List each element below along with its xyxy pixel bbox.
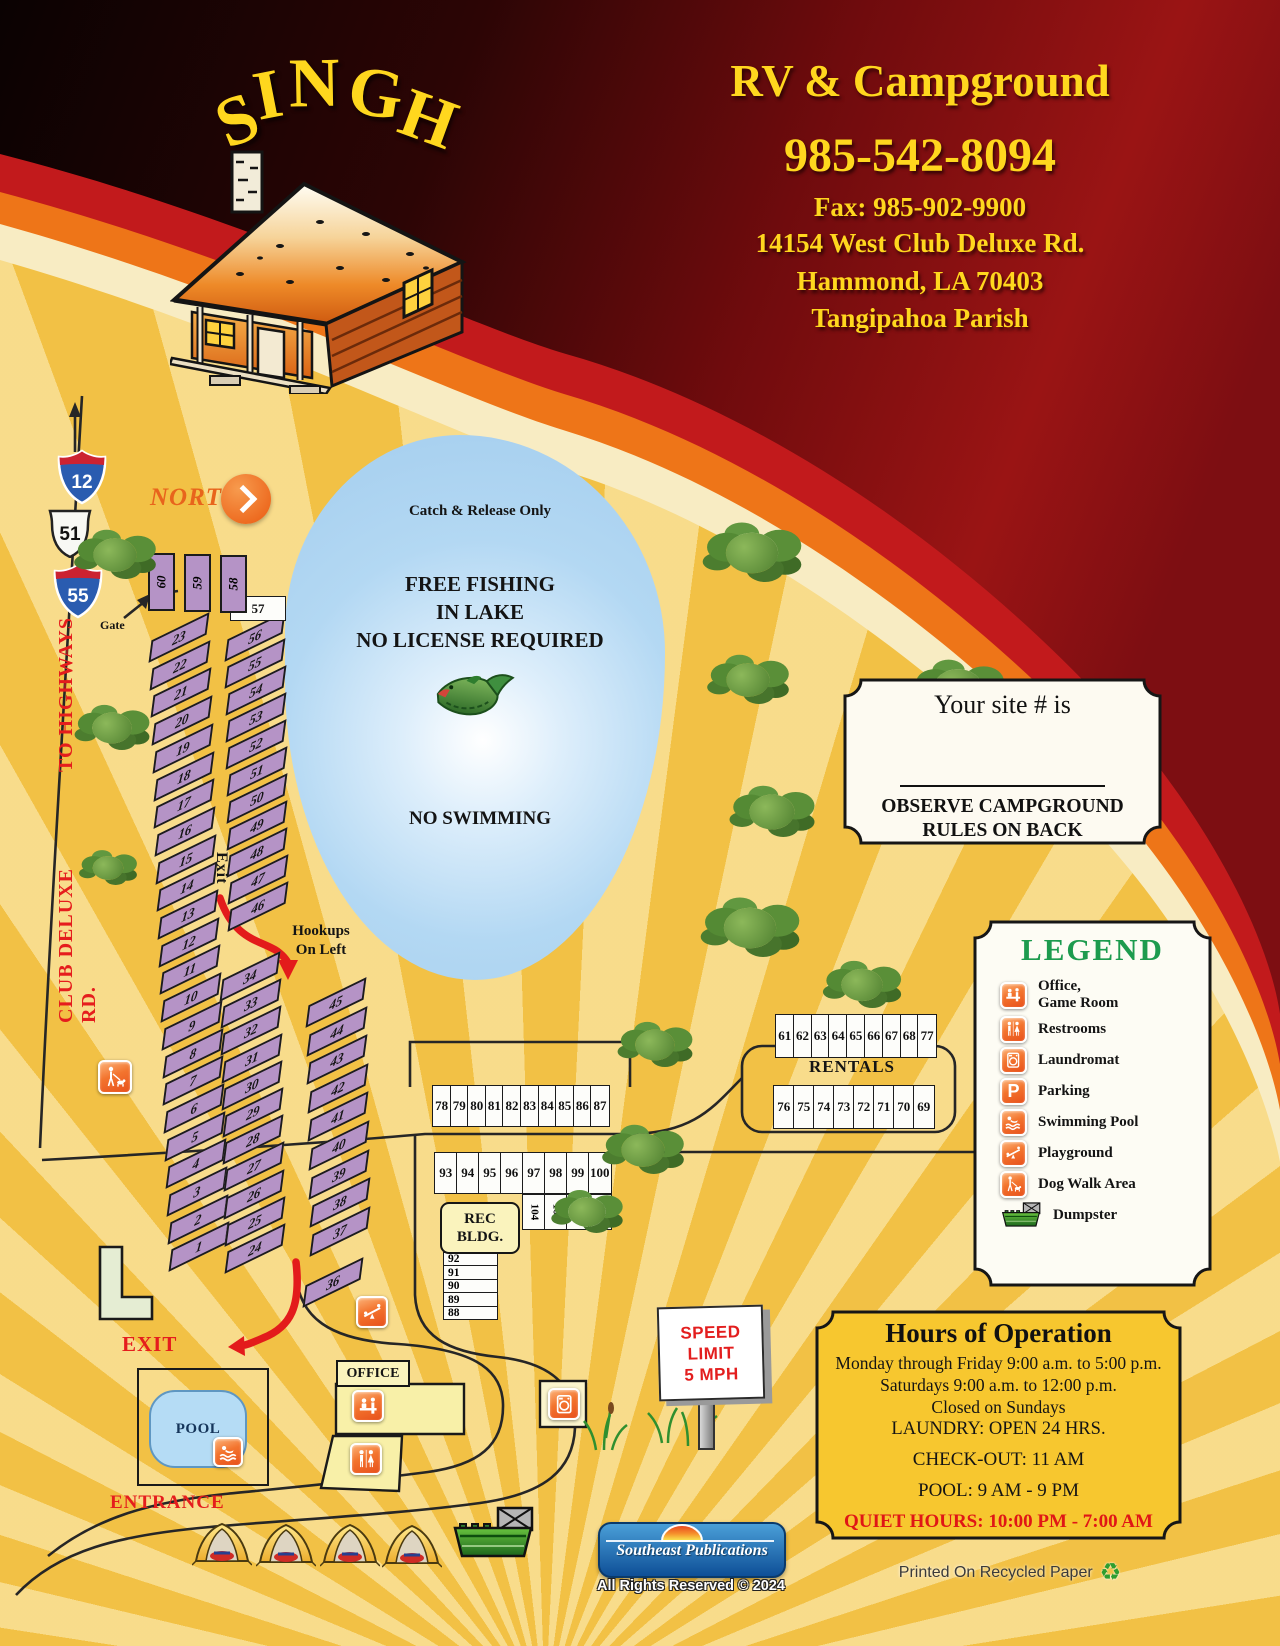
free-fishing-line3: NO LICENSE REQUIRED: [300, 626, 660, 654]
swimming-pool-icon: [213, 1437, 243, 1467]
hookups-line2: On Left: [276, 941, 366, 960]
hours-weekday: Monday through Friday 9:00 a.m. to 5:00 …: [822, 1352, 1175, 1374]
rentals-label: RENTALS: [762, 1057, 942, 1077]
office-gameroom-icon: [1000, 982, 1027, 1009]
legend-label-line: Laundromat: [1038, 1052, 1119, 1069]
hours-laundry: LAUNDRY: OPEN 24 HRS.: [822, 1418, 1175, 1440]
legend-item: Laundromat: [1000, 1047, 1200, 1074]
sign-post: [698, 1396, 715, 1450]
legend-label-line: Swimming Pool: [1038, 1114, 1138, 1131]
speed-line2: LIMIT: [687, 1342, 734, 1364]
no-swimming-label: NO SWIMMING: [330, 808, 630, 830]
hours-checkout: CHECK-OUT: 11 AM: [822, 1449, 1175, 1471]
sun-icon: [662, 1525, 702, 1541]
campground-map-page: SINGH RV & Campground 985-542-8094 Fax: …: [0, 0, 1280, 1646]
legend-item: Dumpster: [1000, 1202, 1200, 1228]
exit-label: EXIT: [122, 1332, 177, 1357]
hours-lines: Monday through Friday 9:00 a.m. to 5:00 …: [822, 1352, 1175, 1533]
speed-line1: SPEED: [680, 1321, 741, 1344]
restrooms-icon: [1000, 1016, 1027, 1043]
restrooms-icon: [350, 1443, 382, 1475]
legend-label-line: Restrooms: [1038, 1021, 1106, 1038]
playground-icon: [1000, 1140, 1027, 1167]
swimming-pool-icon: [1000, 1109, 1027, 1136]
rec-bldg-line1: REC: [464, 1210, 496, 1228]
legend-label-line: Parking: [1038, 1083, 1090, 1100]
legend-item: PParking: [1000, 1078, 1200, 1105]
exit-lane-label: Exit: [212, 852, 230, 922]
legend-label: Swimming Pool: [1038, 1114, 1138, 1131]
playground-icon: [356, 1296, 388, 1328]
free-fishing-label: FREE FISHING IN LAKE NO LICENSE REQUIRED: [300, 570, 660, 654]
observe-rules-line2: RULES ON BACK: [845, 820, 1160, 842]
legend-title: LEGEND: [975, 932, 1210, 968]
office-gameroom-icon: [352, 1390, 384, 1422]
hours-title: Hours of Operation: [820, 1318, 1177, 1349]
catch-release-label: Catch & Release Only: [330, 503, 630, 520]
hookups-label: Hookups On Left: [276, 922, 366, 960]
legend-label-line: Dumpster: [1053, 1207, 1117, 1224]
hours-pool: POOL: 9 AM - 9 PM: [822, 1480, 1175, 1502]
site-number-title: Your site # is: [845, 690, 1160, 720]
speed-line3: 5 MPH: [684, 1363, 739, 1385]
rec-bldg-label: REC BLDG.: [440, 1202, 520, 1254]
hookups-line1: Hookups: [276, 922, 366, 941]
hours-sunday: Closed on Sundays: [822, 1396, 1175, 1418]
legend-item: Swimming Pool: [1000, 1109, 1200, 1136]
to-highways-label: TO HIGHWAYS: [55, 612, 78, 772]
legend-label: Office,Game Room: [1038, 978, 1118, 1012]
parking-icon: P: [1000, 1078, 1027, 1105]
legend-label: Laundromat: [1038, 1052, 1119, 1069]
observe-rules-line1: OBSERVE CAMPGROUND: [845, 796, 1160, 818]
recycled-paper-note: Printed On Recycled Paper ♻: [880, 1558, 1140, 1587]
site-number-blank-line: [900, 785, 1105, 787]
dog-walk-icon: [98, 1060, 132, 1094]
laundromat-icon: [1000, 1047, 1027, 1074]
legend-label: Dog Walk Area: [1038, 1176, 1136, 1193]
legend-item: Dog Walk Area: [1000, 1171, 1200, 1198]
free-fishing-line2: IN LAKE: [300, 598, 660, 626]
speed-limit-sign: SPEED LIMIT 5 MPH: [657, 1305, 765, 1402]
legend-label: Restrooms: [1038, 1021, 1106, 1038]
dog-walk-icon: [1000, 1171, 1027, 1198]
rights-reserved: All Rights Reserved © 2024: [586, 1578, 796, 1594]
publisher-name: Southeast Publications: [600, 1542, 784, 1560]
office-label: OFFICE: [336, 1360, 410, 1387]
north-arrow-icon: [221, 474, 271, 524]
legend-label: Playground: [1038, 1145, 1113, 1162]
legend-label: Dumpster: [1053, 1207, 1117, 1224]
dumpster-icon: [1000, 1202, 1042, 1228]
legend-item: Restrooms: [1000, 1016, 1200, 1043]
legend-label-line: Office,: [1038, 978, 1118, 995]
legend-label-line: Game Room: [1038, 995, 1118, 1012]
legend-items: Office,Game RoomRestroomsLaundromatPPark…: [1000, 978, 1200, 1232]
laundromat-icon: [548, 1388, 580, 1420]
recycled-text: Printed On Recycled Paper: [899, 1564, 1093, 1582]
hours-quiet: QUIET HOURS: 10:00 PM - 7:00 AM: [822, 1511, 1175, 1533]
recycle-icon: ♻: [1100, 1558, 1122, 1587]
gate-label: Gate: [100, 618, 125, 633]
club-deluxe-rd-label: CLUB DELUXE RD.: [55, 828, 101, 1023]
legend-label: Parking: [1038, 1083, 1090, 1100]
entrance-label: ENTRANCE: [110, 1492, 225, 1514]
rec-bldg-line2: BLDG.: [457, 1228, 503, 1246]
free-fishing-line1: FREE FISHING: [300, 570, 660, 598]
legend-item: Office,Game Room: [1000, 978, 1200, 1012]
publisher-logo: Southeast Publications: [598, 1522, 786, 1578]
hours-saturday: Saturdays 9:00 a.m. to 12:00 p.m.: [822, 1374, 1175, 1396]
legend-label-line: Dog Walk Area: [1038, 1176, 1136, 1193]
legend-label-line: Playground: [1038, 1145, 1113, 1162]
legend-item: Playground: [1000, 1140, 1200, 1167]
